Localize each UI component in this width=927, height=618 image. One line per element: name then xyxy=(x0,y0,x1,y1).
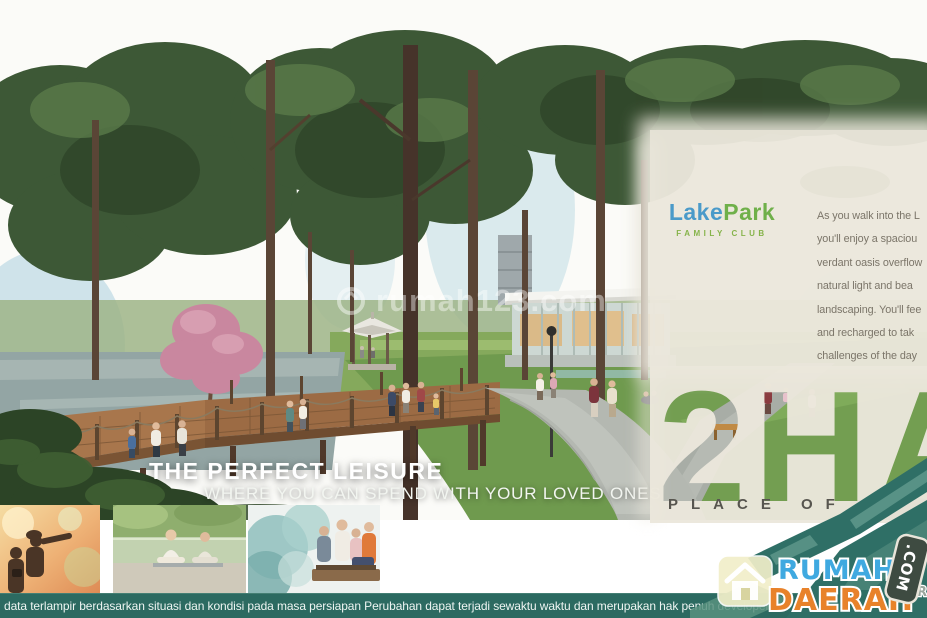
paragraph-line: you'll enjoy a spaciou xyxy=(817,228,927,251)
paragraph-line: challenges of the day xyxy=(817,345,927,368)
hero-subtitle: WHERE YOU CAN SPEND WITH YOUR LOVED ONES xyxy=(204,484,661,504)
thumbnail-activity-3 xyxy=(248,505,380,593)
lakepark-logo-subtitle: FAMILY CLUB xyxy=(660,229,784,238)
paragraph-line: verdant oasis overflow xyxy=(817,252,927,275)
lakepark-logo: LakePark FAMILY CLUB xyxy=(660,199,784,238)
brochure-image: rumah123.com THE PERFECT LEISURE WHERE Y… xyxy=(0,0,927,618)
paragraph-line: As you walk into the L xyxy=(817,205,927,228)
agency-name-rumah: RUMAH xyxy=(778,555,896,586)
lakepark-logo-part1: Lake xyxy=(669,199,723,225)
paragraph-line: and recharged to tak xyxy=(817,322,927,345)
info-paragraph: As you walk into the Lyou'll enjoy a spa… xyxy=(817,205,927,369)
hero-title: THE PERFECT LEISURE xyxy=(149,458,443,485)
agency-logo: ​ RUMAH DAERAH AR .COM xyxy=(690,440,927,618)
paragraph-line: landscaping. You'll fee xyxy=(817,299,927,322)
lakepark-logo-part2: Park xyxy=(723,199,775,225)
disclaimer-text: data terlampir berdasarkan situasi dan k… xyxy=(0,599,769,613)
thumbnail-activity-1 xyxy=(0,505,100,593)
house-icon xyxy=(718,556,772,606)
thumbnail-activity-2 xyxy=(113,505,246,593)
lakepark-logo-name: LakePark xyxy=(660,199,784,226)
paragraph-line: natural light and bea xyxy=(817,275,927,298)
